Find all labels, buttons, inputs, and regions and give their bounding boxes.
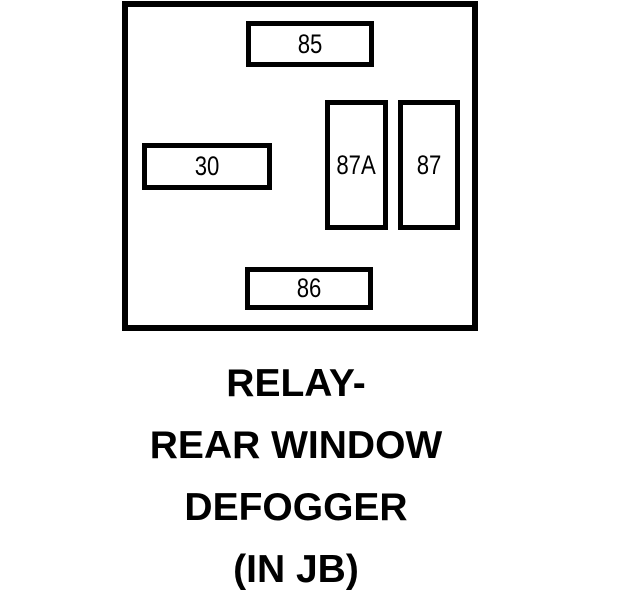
terminal-87a-label: 87A	[337, 152, 376, 179]
terminal-30: 30	[142, 143, 272, 190]
diagram-caption: RELAY- REAR WINDOW DEFOGGER (IN JB)	[46, 353, 546, 601]
terminal-85: 85	[246, 21, 374, 67]
caption-line-in-jb: (IN JB)	[46, 539, 546, 601]
relay-pinout-diagram: 85 30 87A 87 86 RELAY- REAR WINDOW DEFOG…	[0, 0, 624, 600]
terminal-30-label: 30	[195, 153, 220, 180]
caption-line-relay: RELAY-	[46, 353, 546, 415]
terminal-85-label: 85	[298, 31, 323, 58]
terminal-86: 86	[245, 267, 373, 310]
terminal-86-label: 86	[297, 275, 322, 302]
relay-body-outline: 85 30 87A 87 86	[122, 1, 478, 331]
terminal-87-label: 87	[417, 152, 442, 179]
caption-line-defogger: DEFOGGER	[46, 477, 546, 539]
caption-line-rear-window: REAR WINDOW	[46, 415, 546, 477]
terminal-87a: 87A	[325, 100, 388, 230]
terminal-87: 87	[398, 100, 460, 230]
